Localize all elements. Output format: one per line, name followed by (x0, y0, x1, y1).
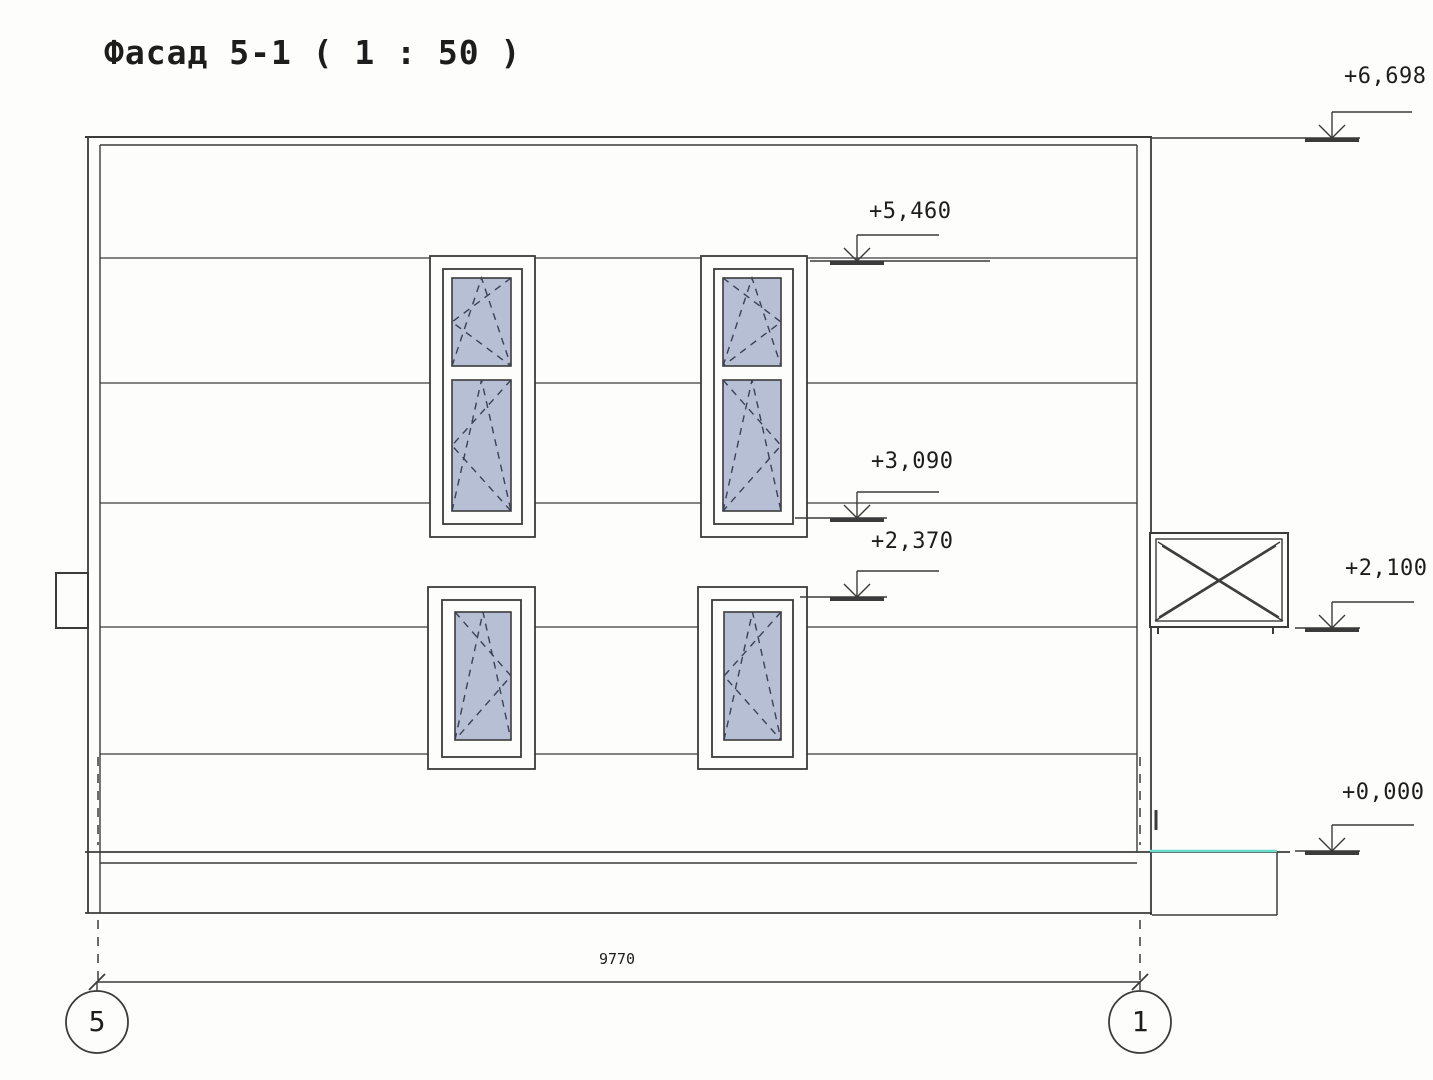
axis-label-1: 1 (1120, 1008, 1160, 1036)
window-lower-right (698, 587, 807, 769)
window-upper-right (701, 256, 807, 537)
dimension-label: 9770 (587, 952, 647, 967)
elevation-label-0000: +0,000 (1342, 782, 1424, 804)
elevation-label-6698: +6,698 (1344, 66, 1426, 88)
elevation-label-5460: +5,460 (869, 201, 951, 223)
level-2100-marker (1295, 602, 1414, 630)
elevation-label-3090: +3,090 (871, 451, 953, 473)
building-outline (56, 137, 1290, 991)
level-0000-marker (1295, 825, 1414, 853)
axis-label-5: 5 (77, 1008, 117, 1036)
window-lower-left (428, 587, 535, 769)
level-6698-marker (1152, 112, 1412, 140)
facade-svg (0, 0, 1433, 1080)
level-2370-marker (800, 571, 939, 599)
level-3090-marker (795, 492, 939, 520)
window-upper-left (430, 256, 535, 537)
elevation-label-2100: +2,100 (1345, 558, 1427, 580)
drawing-title: Фасад 5-1 ( 1 : 50 ) (104, 36, 521, 69)
facade-drawing-sheet: Фасад 5-1 ( 1 : 50 ) +6,698 +5,460 +3,09… (0, 0, 1433, 1080)
elevation-label-2370: +2,370 (871, 531, 953, 553)
balcony-box (1150, 533, 1288, 634)
dimension-line (89, 974, 1148, 990)
level-5460-marker (810, 235, 990, 263)
